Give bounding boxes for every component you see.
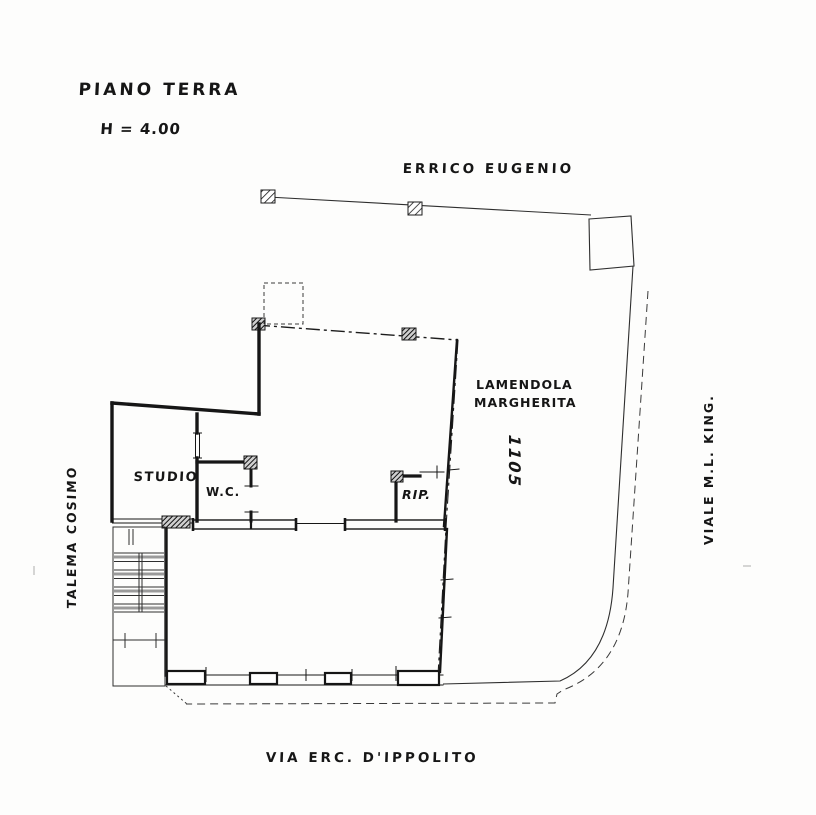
divider-wall [162, 516, 445, 531]
floor-plan-sheet: PIANO TERRA H = 4.00 ERRICO EUGENIO LAME… [0, 0, 816, 815]
courtyard-dashed-outline [264, 283, 303, 324]
neighbor-east-label-line2: MARGHERITA [474, 395, 577, 410]
room-label-wc: W.C. [206, 485, 240, 499]
facade-ticks [206, 666, 396, 682]
room-label-rip: RIP. [402, 487, 431, 502]
parcel-number-label: 1105 [505, 434, 524, 506]
room-label-studio: STUDIO [133, 470, 198, 485]
rip-corner-pillar [391, 471, 403, 482]
street-south-label: VIA ERC. D'IPPOLITO [265, 750, 478, 766]
street-east-label: VIALE M.L. KING. [701, 380, 716, 545]
staircase [113, 527, 165, 686]
neighbor-east-label-line1: LAMENDOLA [476, 377, 573, 392]
neighbor-north-label: ERRICO EUGENIO [402, 161, 574, 177]
facade-window-blocks [167, 671, 439, 685]
wc-corner-pillar [244, 456, 257, 469]
boundary-pillars [252, 190, 422, 340]
ceiling-height-note: H = 4.00 [100, 120, 182, 138]
neighbor-west-label: TALEMA COSIMO [64, 453, 79, 609]
studio-door [193, 433, 202, 458]
plan-title: PIANO TERRA [78, 80, 241, 100]
